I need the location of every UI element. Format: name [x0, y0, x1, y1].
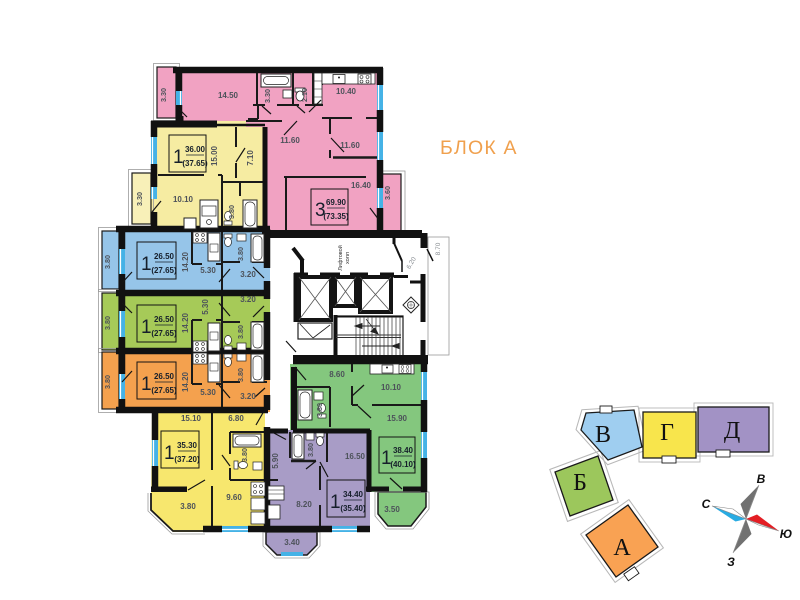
svg-text:Лифтовой: Лифтовой	[337, 245, 344, 271]
svg-text:3.50: 3.50	[384, 505, 400, 514]
svg-text:3.40: 3.40	[284, 538, 300, 547]
svg-text:3.80: 3.80	[306, 443, 315, 457]
svg-text:3.80: 3.80	[103, 316, 112, 330]
svg-text:69.90: 69.90	[326, 198, 347, 207]
svg-text:2.10: 2.10	[300, 88, 309, 102]
svg-text:3.20: 3.20	[240, 270, 256, 279]
svg-text:В: В	[595, 422, 611, 448]
svg-text:холл: холл	[345, 252, 351, 264]
svg-text:8.70: 8.70	[435, 242, 442, 255]
svg-text:Г: Г	[660, 420, 674, 446]
svg-text:3.80: 3.80	[236, 247, 245, 261]
svg-text:3.80: 3.80	[180, 502, 196, 511]
svg-text:1: 1	[141, 374, 152, 395]
svg-text:(37.20): (37.20)	[174, 455, 200, 464]
svg-text:36.00: 36.00	[185, 145, 206, 154]
svg-text:3.80: 3.80	[236, 368, 245, 382]
svg-text:14.50: 14.50	[218, 91, 239, 100]
svg-text:15.00: 15.00	[210, 145, 219, 166]
svg-text:3.80: 3.80	[227, 205, 236, 219]
svg-text:(37.65): (37.65)	[182, 159, 208, 168]
svg-text:10.40: 10.40	[336, 87, 357, 96]
svg-text:(27.65): (27.65)	[151, 386, 177, 395]
svg-text:14.20: 14.20	[181, 371, 190, 392]
svg-text:(27.65): (27.65)	[151, 329, 177, 338]
svg-text:14.20: 14.20	[181, 312, 190, 333]
svg-text:1: 1	[141, 317, 152, 338]
svg-text:(27.65): (27.65)	[151, 266, 177, 275]
svg-text:(40.10): (40.10)	[390, 460, 416, 469]
svg-text:6.80: 6.80	[228, 414, 244, 423]
svg-text:26.50: 26.50	[154, 372, 175, 381]
svg-text:3.20: 3.20	[240, 392, 256, 401]
svg-text:3.30: 3.30	[159, 88, 168, 102]
svg-text:Д: Д	[724, 418, 740, 444]
svg-text:26.50: 26.50	[154, 252, 175, 261]
svg-text:11.60: 11.60	[280, 136, 300, 145]
svg-text:3.80: 3.80	[236, 325, 245, 339]
svg-text:9.60: 9.60	[226, 493, 242, 502]
svg-text:34.40: 34.40	[343, 490, 364, 499]
svg-text:5.90: 5.90	[271, 453, 280, 469]
svg-text:С: С	[702, 497, 711, 511]
svg-text:26.50: 26.50	[154, 315, 175, 324]
svg-text:15.90: 15.90	[387, 414, 408, 423]
svg-text:3.80: 3.80	[240, 448, 249, 462]
svg-text:11.60: 11.60	[340, 141, 360, 150]
svg-text:3.30: 3.30	[135, 192, 144, 206]
svg-text:16.50: 16.50	[345, 452, 366, 461]
svg-text:В: В	[757, 472, 766, 486]
svg-text:1: 1	[330, 492, 341, 513]
svg-text:(35.40): (35.40)	[340, 504, 366, 513]
svg-text:5.30: 5.30	[200, 266, 216, 275]
svg-text:1: 1	[141, 254, 152, 275]
svg-text:А: А	[613, 535, 631, 561]
svg-text:15.10: 15.10	[181, 414, 202, 423]
svg-text:3.80: 3.80	[315, 403, 324, 417]
svg-text:35.30: 35.30	[177, 441, 198, 450]
svg-text:8.60: 8.60	[329, 370, 345, 379]
svg-text:10.10: 10.10	[381, 383, 402, 392]
svg-text:(73.35): (73.35)	[323, 212, 349, 221]
svg-text:3.60: 3.60	[383, 186, 392, 200]
svg-text:8.20: 8.20	[296, 500, 312, 509]
svg-text:Ю: Ю	[780, 527, 793, 541]
svg-text:5.30: 5.30	[200, 388, 216, 397]
svg-text:10.10: 10.10	[173, 195, 194, 204]
svg-text:3.30: 3.30	[263, 89, 272, 103]
svg-text:1: 1	[164, 443, 175, 464]
svg-text:5.30: 5.30	[201, 299, 210, 315]
svg-text:3.80: 3.80	[103, 255, 112, 269]
svg-text:БЛОК А: БЛОК А	[440, 137, 518, 159]
svg-text:7.10: 7.10	[246, 150, 255, 166]
svg-text:3.20: 3.20	[240, 295, 256, 304]
svg-text:3.80: 3.80	[103, 375, 112, 389]
svg-text:38.40: 38.40	[393, 446, 414, 455]
svg-text:14.20: 14.20	[181, 251, 190, 272]
svg-text:16.40: 16.40	[351, 181, 372, 190]
svg-text:Б: Б	[573, 470, 587, 496]
svg-text:З: З	[727, 555, 735, 569]
